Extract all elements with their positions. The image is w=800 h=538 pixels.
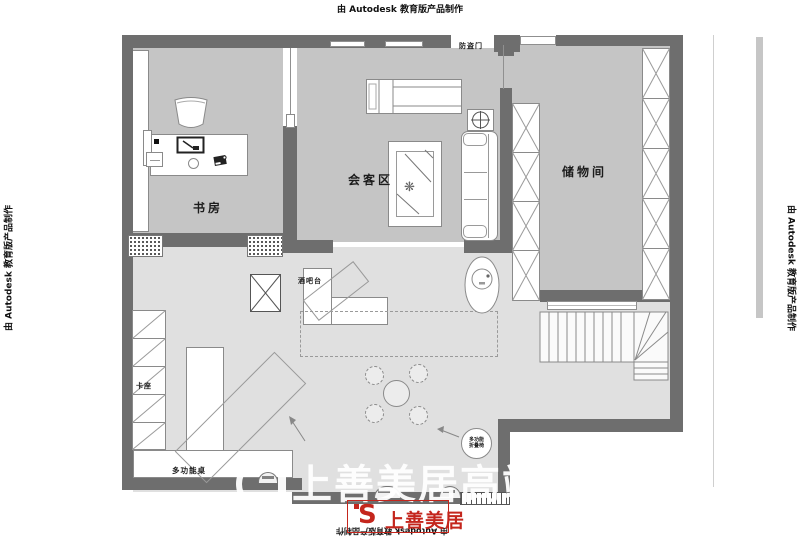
watermark-logo-bar bbox=[278, 464, 286, 496]
label-security-door: 防盗门 bbox=[459, 41, 483, 51]
folding-chair-line2: 折叠椅 bbox=[462, 443, 491, 449]
label-bar-counter: 酒吧台 bbox=[298, 276, 322, 286]
room-label-study: 书房 bbox=[193, 199, 223, 216]
watermark-logo-arc bbox=[236, 458, 284, 510]
room-label-storage: 储物间 bbox=[562, 163, 607, 180]
sheet-border-bar bbox=[756, 37, 763, 318]
label-booth: 卡座 bbox=[136, 381, 152, 391]
folding-chair-badge-text: 多功能 折叠椅 bbox=[462, 437, 491, 449]
brand-logo-mark: S bbox=[358, 500, 377, 530]
credit-left: 由 Autodesk 教育版产品制作 bbox=[2, 205, 15, 331]
watermark-text: 上善美居高端整装 bbox=[292, 452, 578, 504]
room-label-reception: 会客区 bbox=[348, 171, 393, 188]
label-multi-table: 多功能桌 bbox=[172, 465, 206, 476]
sheet-border-line bbox=[713, 35, 714, 487]
credit-top: 由 Autodesk 教育版产品制作 bbox=[280, 2, 520, 15]
floorplan-canvas: ❋ bbox=[0, 0, 800, 538]
brand-logo-name: 上善美居 bbox=[385, 506, 465, 533]
credit-right: 由 Autodesk 教育版产品制作 bbox=[786, 205, 799, 331]
